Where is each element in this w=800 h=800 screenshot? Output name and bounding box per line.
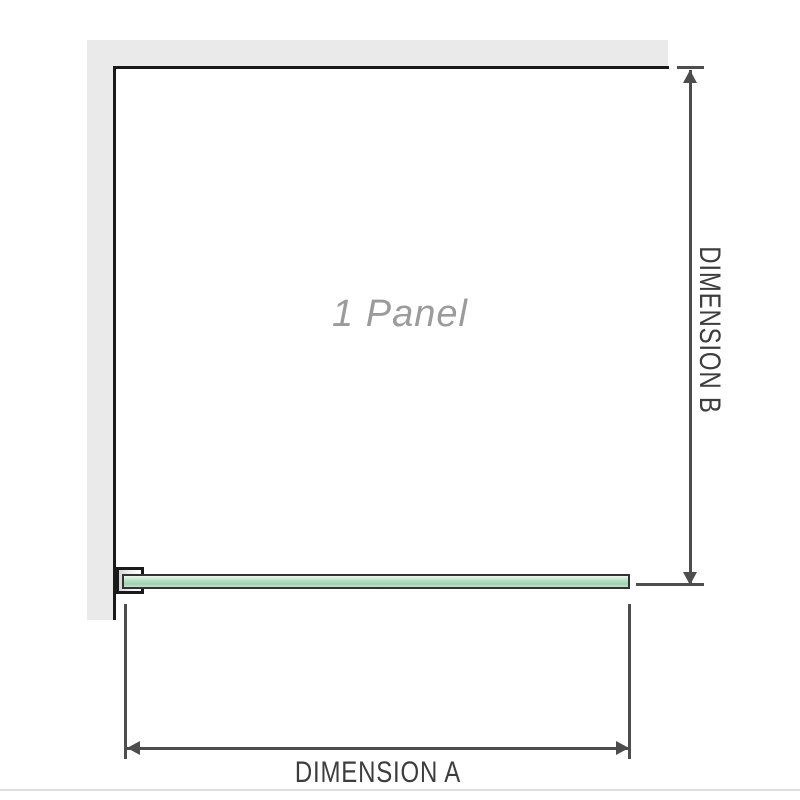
- wall-left-strip: [87, 40, 114, 620]
- panel-count-label: 1 Panel: [290, 291, 510, 337]
- dimension-a-extension-right: [628, 604, 631, 759]
- dimension-b-line: [689, 70, 692, 585]
- dimension-b-label: DIMENSION B: [694, 234, 724, 426]
- dimension-a-extension-left: [124, 604, 127, 759]
- dimension-b-extension-top: [677, 66, 704, 69]
- wall-inner-edge-top-line: [113, 66, 669, 69]
- dimension-a-arrow-left-icon: [127, 741, 140, 755]
- dimension-b-arrow-up-icon: [683, 70, 697, 83]
- dimension-b-extension-bottom: [636, 583, 704, 586]
- dimension-diagram: 1 Panel DIMENSION B DIMENSION A: [0, 0, 800, 800]
- glass-panel-bar: [122, 574, 630, 589]
- dimension-a-arrow-right-icon: [616, 741, 629, 755]
- dimension-a-label: DIMENSION A: [258, 757, 498, 789]
- wall-inner-edge-left-line: [113, 66, 116, 620]
- wall-top-strip: [87, 40, 668, 67]
- image-bottom-edge-line: [0, 789, 800, 791]
- dimension-a-line: [127, 747, 629, 750]
